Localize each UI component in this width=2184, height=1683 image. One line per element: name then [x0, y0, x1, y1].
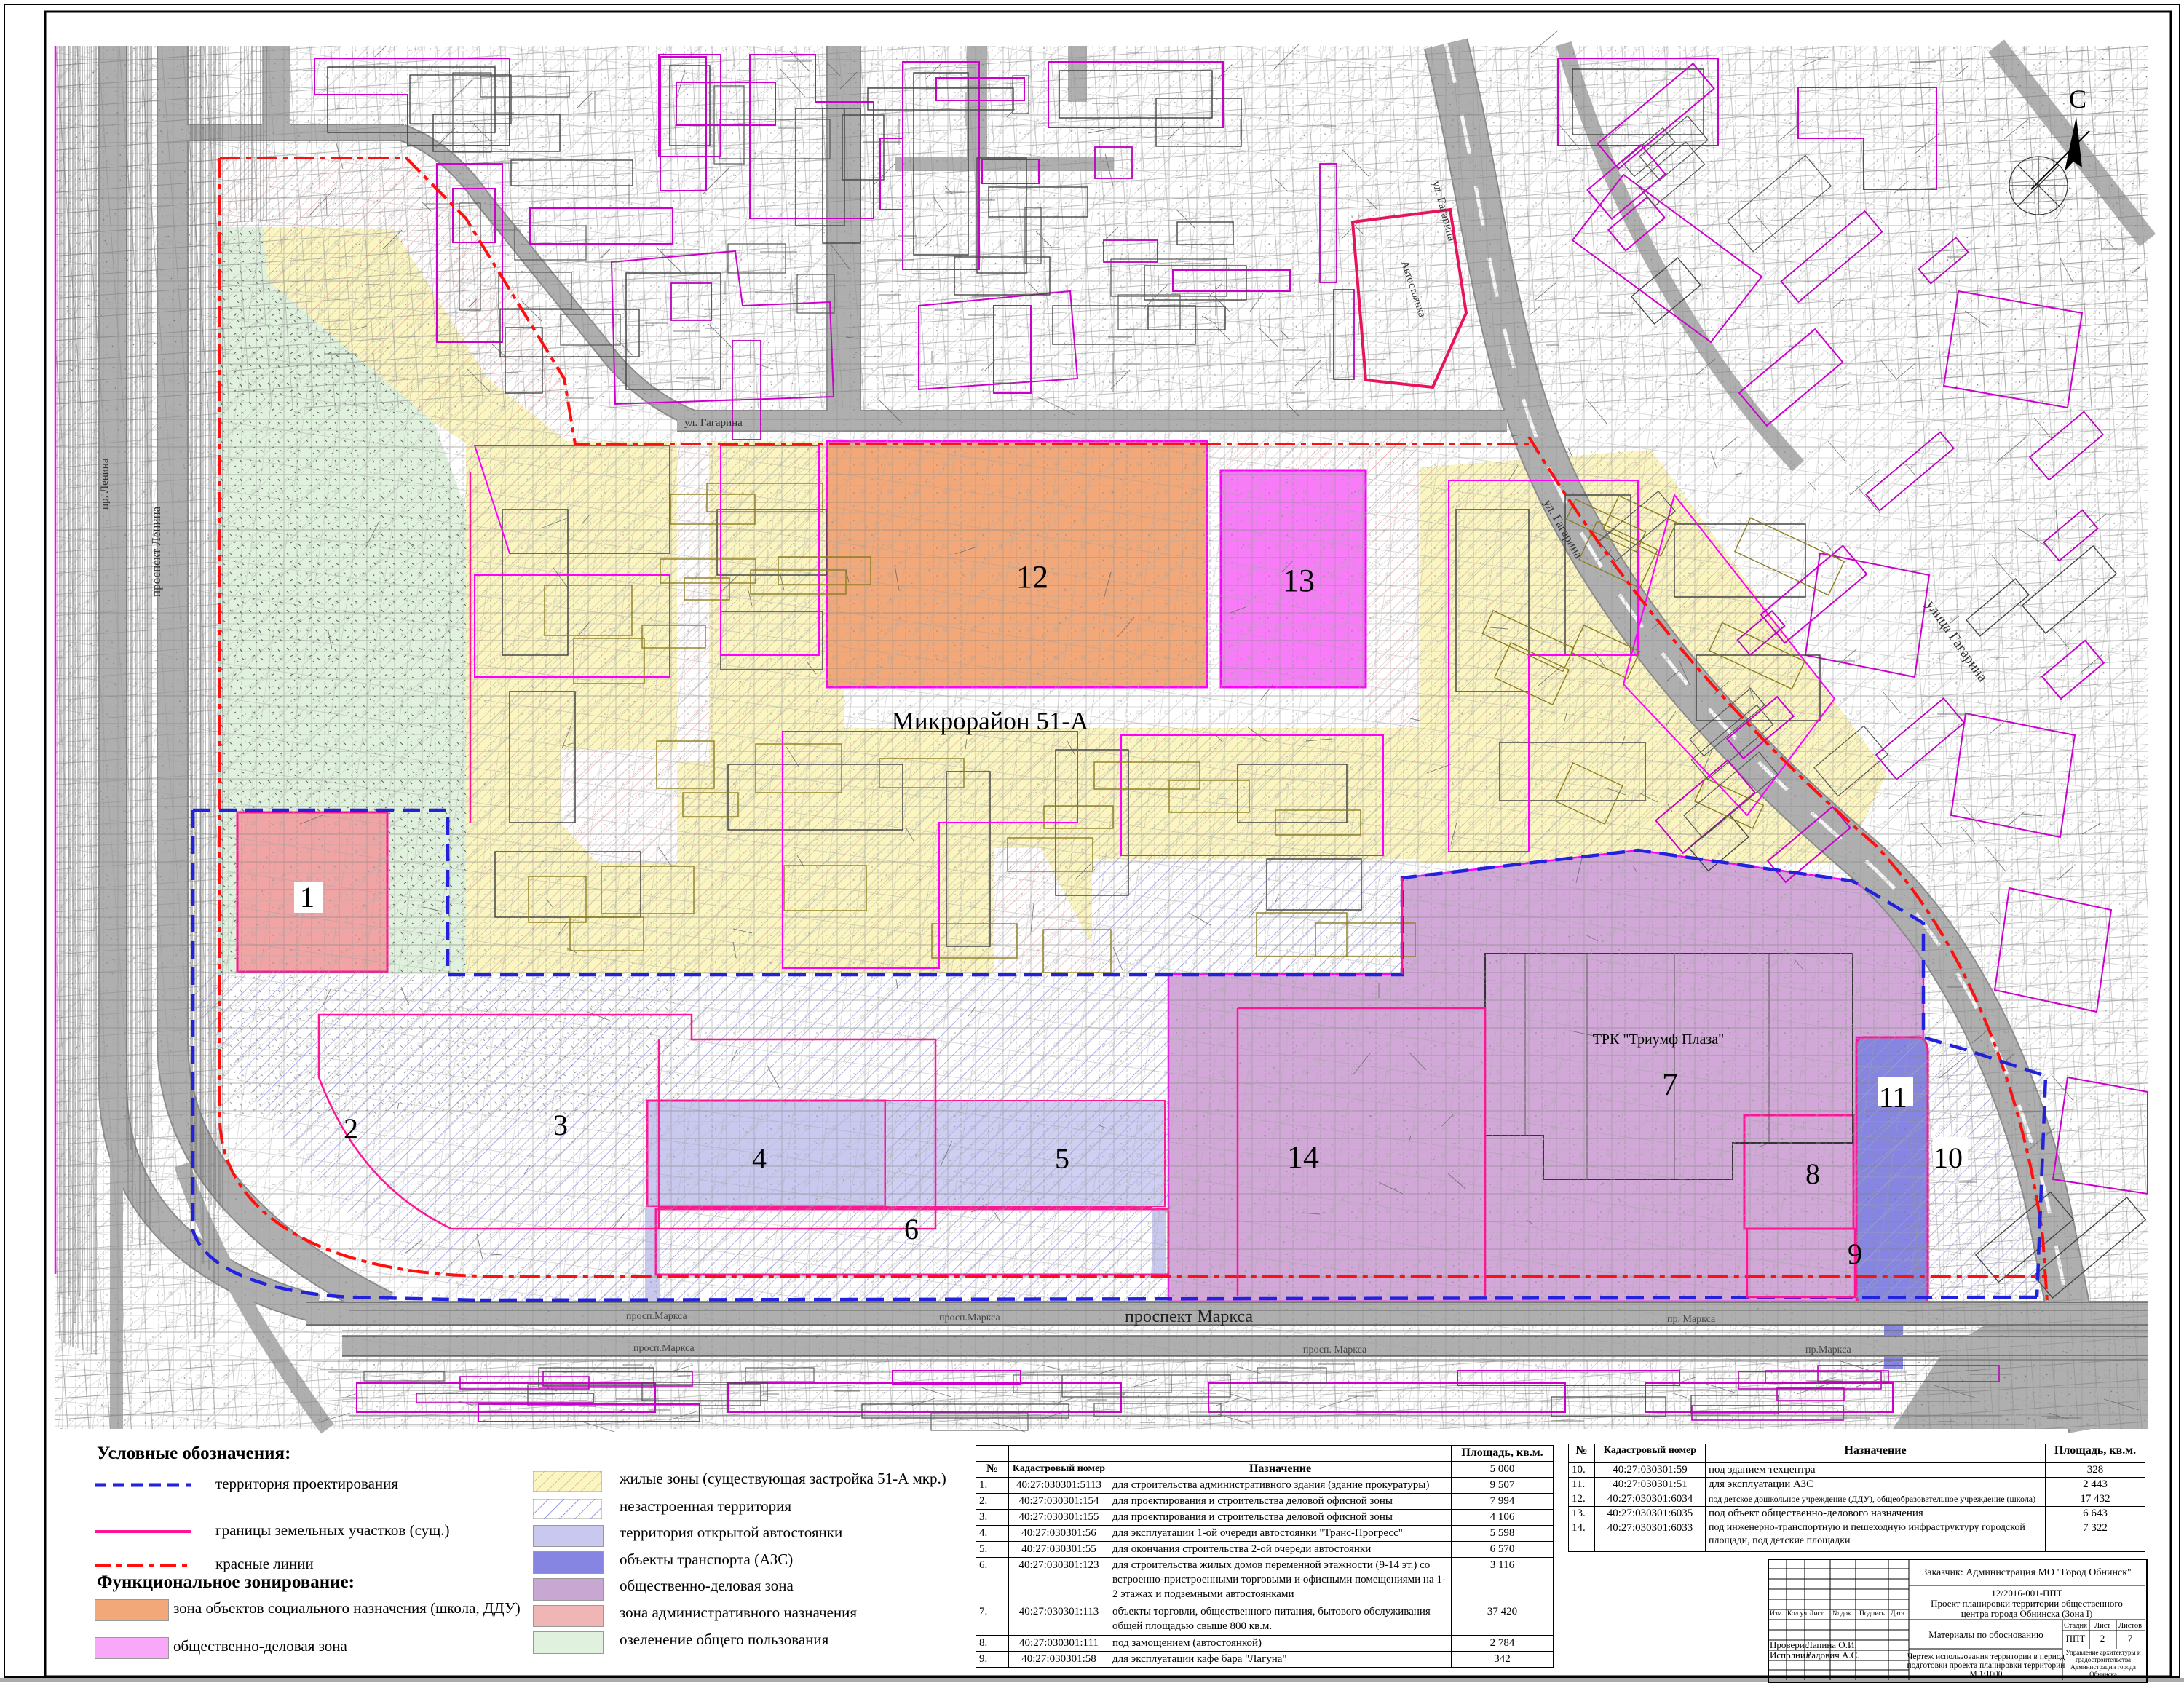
svg-text:Заказчик: Администрация МО "Го: Заказчик: Администрация МО "Город Обнинс… [1922, 1567, 2132, 1578]
svg-text:2: 2 [344, 1112, 358, 1145]
svg-text:пр.Маркса: пр.Маркса [1805, 1345, 1851, 1355]
svg-text:6: 6 [904, 1213, 919, 1246]
svg-text:13: 13 [1283, 563, 1315, 598]
svg-text:С: С [2069, 84, 2086, 114]
svg-text:Администрации города: Администрации города [2070, 1663, 2136, 1671]
svg-text:Изм.: Изм. [1770, 1610, 1784, 1617]
svg-text:просп.Маркса: просп.Маркса [633, 1343, 695, 1354]
svg-text:Кол.уч.: Кол.уч. [1787, 1610, 1809, 1617]
svg-text:14: 14 [1287, 1139, 1319, 1175]
svg-text:подготовки проекта планировки: подготовки проекта планировки территории [1907, 1661, 2065, 1670]
svg-text:Чертеж использования территори: Чертеж использования территории в период [1907, 1652, 2065, 1661]
svg-text:12/2016-001-ППТ: 12/2016-001-ППТ [1991, 1588, 2062, 1599]
svg-text:пр. Ленина: пр. Ленина [99, 458, 111, 510]
svg-text:Исполнил: Исполнил [1770, 1650, 1811, 1660]
svg-text:проспект Ленина: проспект Ленина [149, 506, 163, 597]
svg-text:Лист: Лист [2094, 1622, 2110, 1630]
svg-text:просп. Маркса: просп. Маркса [1303, 1345, 1367, 1355]
svg-text:7: 7 [1662, 1066, 1678, 1102]
svg-text:ППТ: ППТ [2066, 1633, 2086, 1644]
svg-text:Управление архитектуры и: Управление архитектуры и [2065, 1649, 2140, 1656]
svg-text:2: 2 [2100, 1633, 2105, 1644]
svg-text:Микрорайон 51-А: Микрорайон 51-А [892, 707, 1089, 735]
svg-text:3: 3 [553, 1109, 568, 1141]
svg-text:10: 10 [1934, 1141, 1963, 1174]
svg-text:ТРК "Триумф Плаза": ТРК "Триумф Плаза" [1593, 1031, 1725, 1048]
svg-text:Стадия: Стадия [2064, 1622, 2087, 1630]
svg-text:Дата: Дата [1891, 1610, 1905, 1617]
svg-text:7: 7 [2128, 1633, 2133, 1644]
svg-text:Лист: Лист [1809, 1610, 1824, 1617]
svg-text:проспект Маркса: проспект Маркса [1125, 1307, 1253, 1326]
svg-text:просп.Маркса: просп.Маркса [939, 1312, 1001, 1323]
svg-text:1: 1 [300, 881, 314, 914]
svg-text:12: 12 [1016, 559, 1048, 595]
svg-text:Лапина О.И.: Лапина О.И. [1806, 1639, 1857, 1650]
svg-text:Материалы по обоснованию: Материалы по обоснованию [1928, 1629, 2043, 1640]
svg-text:пр. Маркса: пр. Маркса [1667, 1314, 1716, 1325]
svg-text:Листов: Листов [2118, 1622, 2142, 1630]
svg-text:№ док.: № док. [1832, 1610, 1853, 1617]
svg-text:4: 4 [752, 1142, 767, 1175]
svg-text:Радович А.С.: Радович А.С. [1806, 1650, 1860, 1660]
svg-text:8: 8 [1805, 1157, 1820, 1190]
svg-text:центра города Обнинска (Зона I: центра города Обнинска (Зона I) [1961, 1608, 2093, 1619]
svg-text:9: 9 [1848, 1237, 1862, 1270]
svg-text:ул. Гагарина: ул. Гагарина [684, 417, 743, 429]
svg-text:градостроительства: градостроительства [2076, 1656, 2131, 1663]
svg-text:Подпись: Подпись [1859, 1610, 1886, 1617]
svg-text:просп.Маркса: просп.Маркса [626, 1311, 688, 1322]
svg-text:М 1:1000: М 1:1000 [1969, 1670, 2002, 1679]
svg-text:Проверил: Проверил [1770, 1639, 1810, 1650]
svg-text:5: 5 [1055, 1142, 1069, 1175]
svg-text:11: 11 [1879, 1081, 1907, 1114]
svg-text:Обнинска: Обнинска [2089, 1671, 2117, 1678]
svg-text:Проект планировки территории о: Проект планировки территории общественно… [1931, 1598, 2123, 1609]
